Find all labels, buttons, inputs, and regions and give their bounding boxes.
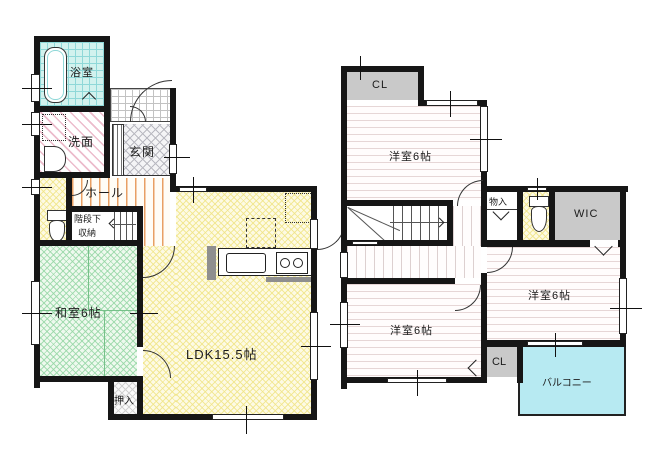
- window: [212, 414, 284, 420]
- stair-step: [402, 206, 403, 240]
- window-tick: [555, 333, 556, 357]
- window: [426, 100, 478, 106]
- wall: [34, 36, 110, 42]
- label-oshiire: 押入: [114, 392, 134, 407]
- wall: [311, 192, 317, 220]
- wall: [341, 200, 453, 206]
- label-ldk: LDK15.5帖: [186, 344, 258, 363]
- window-tick: [22, 88, 52, 89]
- label-bedroom-north: 洋室6帖: [389, 148, 432, 164]
- tatami-line: [88, 246, 89, 310]
- stair-step: [393, 206, 394, 240]
- window-tick: [22, 187, 52, 188]
- window-tick: [164, 157, 190, 158]
- kitchen-sink: [226, 253, 266, 273]
- stairs-2f: [347, 206, 447, 240]
- counter-end-panel: [207, 246, 216, 280]
- stove-burner: [280, 258, 290, 268]
- label-entrance: 玄関: [129, 143, 155, 160]
- wall: [34, 376, 143, 382]
- wall: [341, 278, 455, 284]
- hood-x-line: [247, 218, 275, 246]
- window-tick: [450, 91, 451, 117]
- label-japanese-room: 和室6帖: [55, 304, 102, 321]
- floorplan: 浴室 洗面 玄関 ホール 階段下 収納 和室6帖 LDK15.5帖 押入 CL …: [0, 0, 660, 454]
- room-hall-2f: [347, 246, 481, 278]
- window-tick: [330, 324, 360, 325]
- window: [169, 144, 177, 174]
- washbasin: [44, 146, 66, 172]
- window-tick: [22, 313, 52, 314]
- label-stair-storage-2: 収納: [78, 226, 96, 239]
- stair-step: [120, 208, 121, 242]
- label-balcony: バルコニー: [542, 374, 592, 389]
- wall: [517, 186, 523, 242]
- stair-step: [420, 206, 421, 240]
- refrigerator-space: [285, 193, 313, 223]
- window: [619, 278, 627, 334]
- label-hall: ホール: [85, 184, 124, 201]
- window: [352, 241, 378, 245]
- window-tick: [193, 177, 194, 203]
- washing-machine: [42, 114, 66, 141]
- wall: [549, 186, 555, 242]
- window: [340, 302, 348, 348]
- wall: [341, 66, 424, 72]
- counter-edge: [266, 277, 314, 282]
- window: [340, 252, 348, 278]
- wall: [517, 347, 523, 383]
- room-hall-2f-east: [453, 206, 481, 246]
- label-closet-south: CL: [492, 356, 506, 368]
- shoe-cabinet: [112, 124, 124, 176]
- window-tick: [130, 313, 158, 314]
- window-tick: [301, 346, 331, 347]
- wall: [34, 172, 110, 178]
- wall: [34, 240, 143, 246]
- window-tick: [537, 178, 538, 200]
- stair-step: [411, 206, 412, 240]
- window-tick: [360, 56, 361, 80]
- wall: [34, 106, 110, 112]
- label-stair-storage-1: 階段下: [74, 212, 101, 225]
- window-tick: [246, 406, 247, 434]
- stair-step: [126, 208, 127, 242]
- bathtub-inner: [47, 50, 64, 100]
- label-storage: 物入: [489, 195, 507, 208]
- stair-step: [429, 206, 430, 240]
- stair-step: [132, 208, 133, 242]
- hood-x-line: [247, 218, 275, 246]
- window-tick: [610, 308, 642, 309]
- window-tick: [470, 139, 502, 140]
- window-tick: [22, 124, 52, 125]
- label-wic: WIC: [574, 208, 598, 220]
- tatami-line: [104, 310, 105, 376]
- window-tick: [417, 370, 418, 396]
- stove-burner: [293, 258, 303, 268]
- label-bathroom: 浴室: [70, 64, 94, 80]
- label-closet-top: CL: [372, 79, 388, 91]
- range-hood: [246, 218, 276, 248]
- label-bedroom-west: 洋室6帖: [390, 322, 433, 338]
- label-washroom: 洗面: [68, 133, 94, 150]
- label-bedroom-east: 洋室6帖: [528, 287, 571, 303]
- room-ldk: [176, 192, 311, 414]
